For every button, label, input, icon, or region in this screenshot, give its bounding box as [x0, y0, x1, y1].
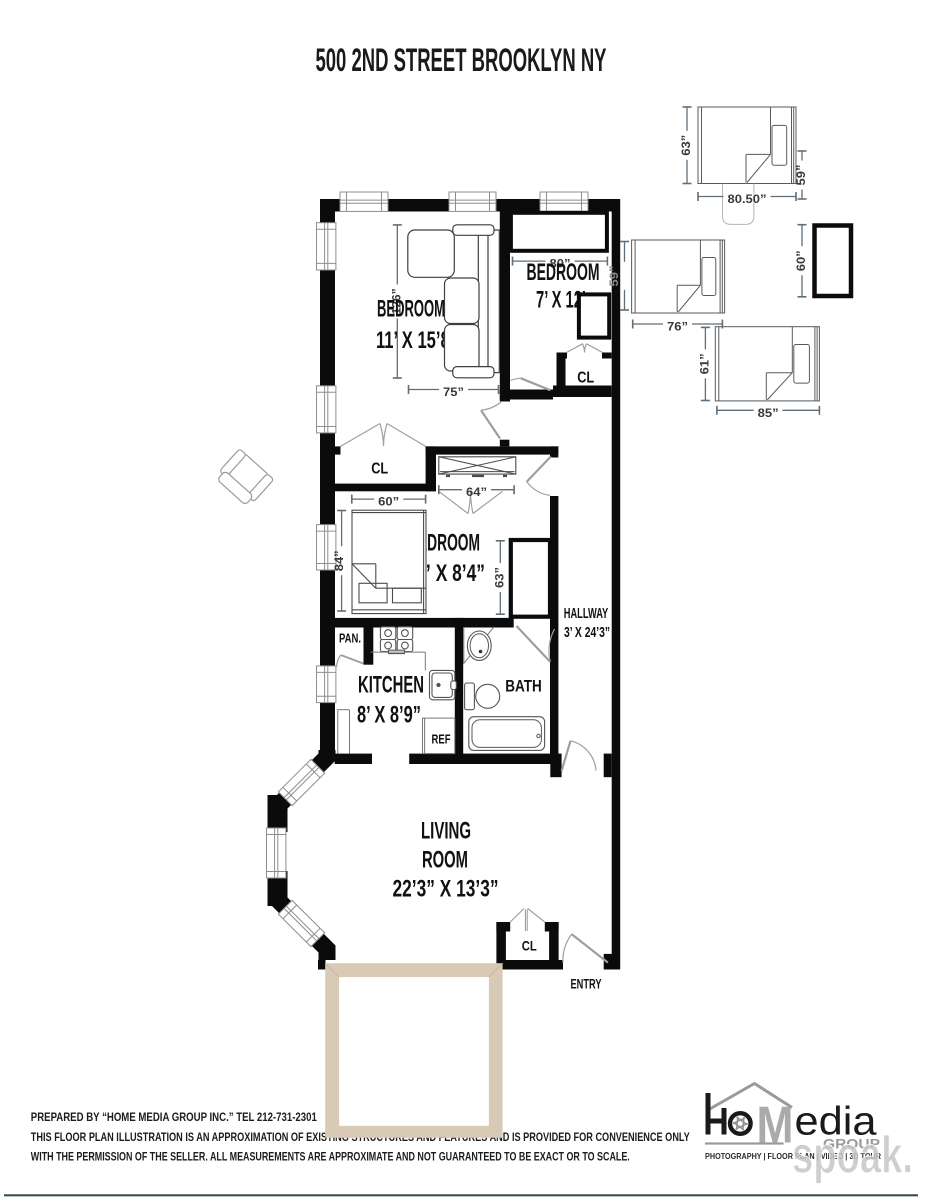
svg-text:spoak.: spoak.	[792, 1127, 913, 1185]
svg-text:REF: REF	[432, 732, 451, 747]
svg-text:KITCHEN: KITCHEN	[358, 672, 424, 699]
svg-text:ENTRY: ENTRY	[571, 977, 602, 992]
svg-text:64”: 64”	[466, 487, 487, 499]
svg-text:22’3” X 13’3”: 22’3” X 13’3”	[393, 876, 499, 903]
svg-text:63”: 63”	[494, 567, 506, 588]
svg-text:3’ X 24’3”: 3’ X 24’3”	[564, 625, 610, 641]
svg-text:76”: 76”	[667, 322, 688, 334]
svg-text:WITH THE PERMISSION OF THE SEL: WITH THE PERMISSION OF THE SELLER. ALL M…	[31, 1152, 630, 1164]
svg-text:80.50”: 80.50”	[728, 194, 767, 206]
svg-text:61”: 61”	[699, 353, 711, 374]
svg-text:PREPARED BY “HOME MEDIA GROUP: PREPARED BY “HOME MEDIA GROUP INC.” TEL …	[31, 1112, 318, 1124]
svg-text:500 2ND STREET BROOKLYN NY: 500 2ND STREET BROOKLYN NY	[316, 42, 607, 78]
svg-text:HALLWAY: HALLWAY	[564, 606, 609, 622]
svg-text:8’ X 8’9”: 8’ X 8’9”	[357, 702, 421, 729]
svg-text:59”: 59”	[609, 266, 621, 287]
svg-text:BEDROOM: BEDROOM	[527, 259, 600, 286]
svg-text:60”: 60”	[378, 497, 399, 509]
svg-text:63”: 63”	[681, 135, 693, 156]
svg-text:CL: CL	[522, 938, 537, 954]
svg-text:LIVING: LIVING	[421, 818, 471, 845]
svg-text:BEDROOM: BEDROOM	[377, 296, 445, 323]
svg-text:BATH: BATH	[505, 678, 542, 696]
svg-text:M: M	[757, 1097, 794, 1155]
svg-text:75”: 75”	[443, 387, 464, 399]
svg-text:CL: CL	[577, 370, 594, 387]
svg-text:85”: 85”	[758, 408, 779, 420]
svg-text:60”: 60”	[796, 250, 808, 271]
svg-text:ROOM: ROOM	[422, 847, 468, 874]
svg-text:CL: CL	[371, 461, 388, 478]
svg-text:PAN.: PAN.	[339, 631, 361, 646]
svg-text:59”: 59”	[796, 165, 808, 186]
svg-text:84”: 84”	[334, 550, 346, 571]
